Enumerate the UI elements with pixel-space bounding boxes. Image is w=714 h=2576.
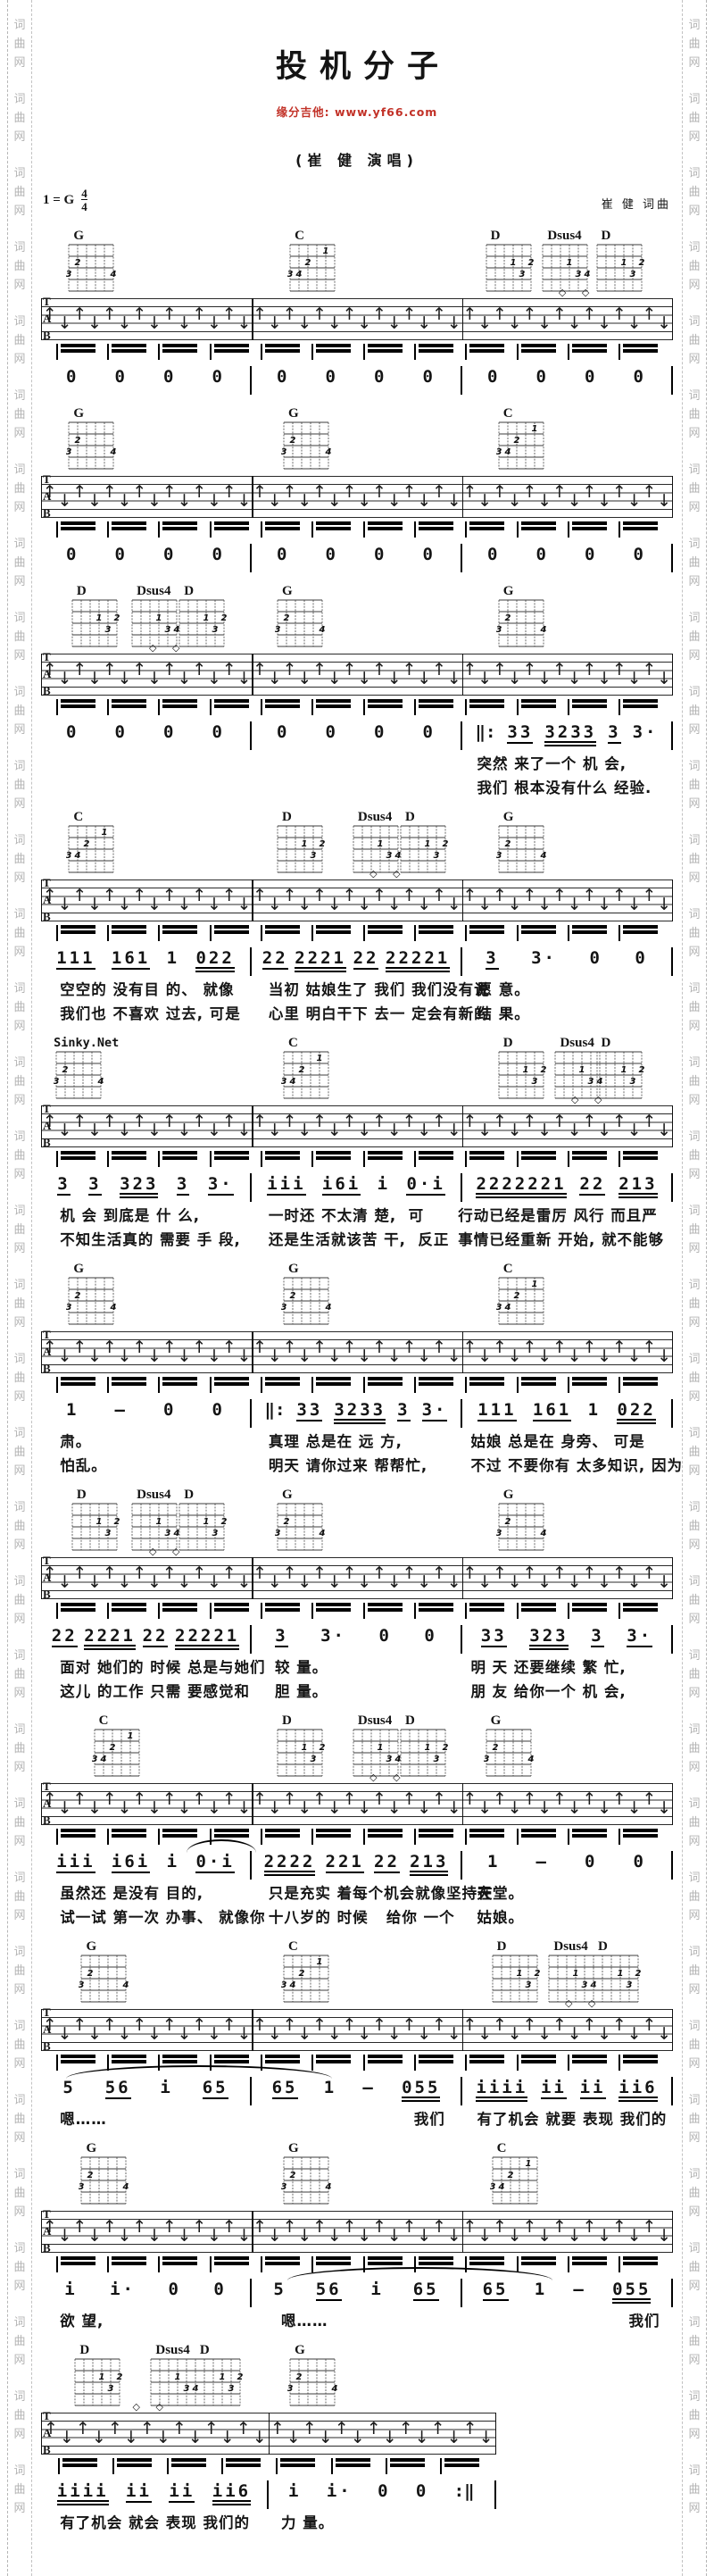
melody-note: i	[370, 2280, 383, 2298]
beam-bar	[316, 2256, 351, 2260]
beam-group	[158, 521, 197, 538]
strum-down-icon: ↓	[537, 2026, 552, 2043]
beam-bar	[162, 349, 197, 353]
chord-g: G234	[79, 2141, 132, 2210]
melody-measure: 0000	[252, 721, 462, 750]
beam-bar	[112, 1829, 146, 1832]
svg-text:3: 3	[582, 1980, 588, 1990]
beam-bar	[521, 527, 556, 530]
beam-group	[619, 699, 658, 715]
strum-up-icon: ↑	[72, 1565, 87, 1582]
melody-measure: 651–055	[252, 2077, 462, 2105]
svg-text:2: 2	[443, 1743, 448, 1753]
beam-group	[465, 1603, 504, 1619]
strum-up-icon: ↑	[432, 306, 446, 323]
strum-up-icon: ↑	[343, 1113, 357, 1130]
beam-bar	[390, 2463, 425, 2467]
beam-bar	[280, 2458, 315, 2462]
beam-group	[568, 344, 607, 360]
beam-group	[414, 699, 453, 715]
beam-group	[56, 1377, 95, 1393]
strum-down-icon: ↓	[268, 1122, 282, 1139]
melody-note: 22	[579, 1175, 605, 1196]
chord-name: D	[177, 1488, 230, 1502]
melody-measure: 0000	[41, 721, 252, 750]
melody-note: 0	[66, 368, 79, 386]
beam-bar	[316, 344, 351, 347]
strum-down-icon: ↓	[357, 493, 371, 510]
beam-bar	[419, 521, 453, 525]
beam-bar	[61, 349, 95, 353]
beam-bar	[419, 1382, 453, 1386]
beam-bar	[214, 1382, 249, 1386]
melody-note: 111	[477, 1401, 516, 1421]
strum-down-icon: ↓	[58, 315, 72, 332]
chord-diagram: 1234	[496, 1276, 550, 1330]
beam-group	[568, 925, 607, 941]
strum-up-icon: ↑	[192, 1565, 206, 1582]
chord-d: D123	[70, 584, 123, 653]
beam-bar	[265, 1608, 300, 1612]
chord-d: D123	[275, 1713, 328, 1782]
svg-text:4: 4	[97, 1077, 104, 1087]
tab-staff-wrap: TAB↑↓↑↓↑↓↑↓↑↓↑↓↑↓↑↓↑↓↑↓↑↓↑↓↑↓↑↓◇ ◇	[41, 2413, 496, 2455]
melody-note: 0	[212, 546, 225, 563]
strum-up-icon: ↑	[642, 484, 656, 501]
beam-group	[210, 699, 249, 715]
strum-down-icon: ↓	[568, 2228, 582, 2245]
beam-bar	[368, 930, 403, 934]
strum-up-icon: ↑	[462, 1113, 477, 1130]
strum-down-icon: ↓	[237, 493, 252, 510]
tab-staff: TAB↑↓↑↓↑↓↑↓↑↓↑↓↑↓↑↓↑↓↑↓↑↓↑↓↑↓↑↓↑↓↑↓↑↓↑↓↑…	[41, 1783, 673, 1825]
beam-bar	[572, 1829, 607, 1832]
beam-bar	[61, 1151, 95, 1155]
lyrics-segment: 心里 明白干下 去一 定会有新的	[269, 1002, 490, 1023]
chord-grid: 234	[496, 598, 546, 649]
lyrics-line: 试一试 第一次 办事、 就像你十八岁的 时候 给你 一个姑娘。	[41, 1904, 673, 1928]
strum-down-icon: ↓	[207, 1122, 221, 1139]
beam-bar	[112, 1382, 146, 1386]
strum-down-icon: ↓	[568, 315, 582, 332]
beam-bar	[214, 527, 249, 530]
beam-bar	[214, 521, 249, 525]
strum-up-icon: ↑	[162, 662, 177, 679]
svg-text:4: 4	[584, 270, 590, 279]
strum-up-icon: ↑	[283, 888, 297, 905]
chord-row: G234G234C1234	[41, 406, 673, 476]
strum-up-icon: ↑	[462, 484, 477, 501]
beam-bar	[171, 2463, 206, 2467]
tab-letters: TAB	[43, 473, 54, 519]
strum-up-icon: ↑	[72, 306, 87, 323]
beam-group	[440, 2458, 479, 2474]
strum-up-icon: ↑	[222, 484, 237, 501]
strum-up-icon: ↑	[72, 888, 87, 905]
melody-measure: ‖:33323333·	[462, 721, 673, 750]
lyrics-segment: 我们	[628, 2309, 660, 2330]
strum-up-icon: ↑	[403, 1565, 417, 1582]
beam-bar	[61, 2055, 95, 2058]
beam-group	[167, 2458, 206, 2474]
strum-down-icon: ↓	[268, 2026, 282, 2043]
strum-down-icon: ↓	[328, 671, 342, 688]
strum-up-icon: ↑	[582, 1565, 596, 1582]
strum-down-icon: ↓	[207, 671, 221, 688]
strum-up-icon: ↑	[283, 1565, 297, 1582]
strum-down-icon: ↓	[118, 2026, 132, 2043]
chord-name: G	[496, 584, 550, 598]
strum-up-icon: ↑	[343, 2219, 357, 2236]
beam-bar	[316, 2060, 351, 2063]
beam-bar	[368, 2060, 403, 2063]
strum-down-icon: ↓	[328, 1574, 342, 1591]
beam-group	[465, 2055, 504, 2071]
beam-bar	[444, 2458, 479, 2462]
svg-text:4: 4	[539, 851, 545, 861]
svg-text:3: 3	[496, 851, 502, 861]
beam-bar	[112, 2060, 146, 2063]
svg-text:3: 3	[212, 1529, 219, 1538]
svg-text:1: 1	[522, 1065, 528, 1075]
strum-down-icon: ↓	[357, 2026, 371, 2043]
svg-text:3: 3	[629, 270, 635, 279]
beam-bar	[112, 2262, 146, 2265]
svg-text:3: 3	[92, 1755, 98, 1764]
melody-measure: 222222122213	[462, 1173, 673, 1202]
strum-measure: ↑↓↑↓↑↓↑↓↑↓↑↓↑↓	[252, 654, 461, 696]
melody-measure: 0000	[252, 544, 462, 572]
lyrics-segment: 十八岁的 时候 给你 一个	[269, 1905, 455, 1927]
beam-bar	[521, 1156, 556, 1160]
strum-up-icon: ↑	[253, 1339, 267, 1356]
tab-letter-b: B	[43, 1363, 54, 1374]
strum-down-icon: ↓	[508, 1122, 522, 1139]
strum-up-icon: ↑	[462, 1565, 477, 1582]
tab-letters: TAB	[43, 877, 54, 922]
lyrics-segment: 试一试 第一次 办事、 就像你	[60, 1905, 265, 1927]
beam-bar	[419, 1603, 453, 1606]
melody-note: 161	[533, 1401, 571, 1421]
strum-down-icon: ↓	[297, 315, 311, 332]
melody-note: 0	[163, 368, 176, 386]
melody-note: ii	[169, 2482, 195, 2503]
melody-note: 3·	[627, 1627, 652, 1647]
chord-d: D123	[70, 1488, 123, 1556]
accent-diamonds: ◇ ◇	[565, 1997, 602, 2009]
beam-group	[465, 521, 504, 538]
strum-up-icon: ↑	[642, 888, 656, 905]
accent-diamonds: ◇ ◇	[559, 287, 595, 298]
strum-measure: ↑↓↑↓↑↓↑↓↑↓↑↓↑↓	[252, 1331, 461, 1373]
melody-note: 0	[374, 723, 386, 741]
chord-g: G234	[281, 1262, 335, 1330]
tab-system-3: D123Dsus4134D123G234G234TAB↑↓↑↓↑↓↑↓↑↓↑↓↑…	[0, 584, 714, 798]
strum-down-icon: ↓	[447, 493, 461, 510]
strum-down-icon: ↓	[508, 671, 522, 688]
chord-grid: 1234	[496, 421, 546, 471]
chord-diagram: 123	[484, 243, 537, 297]
melody-note: 22	[143, 1627, 169, 1647]
melody-note: –	[536, 1853, 549, 1871]
beam-bar	[469, 1377, 504, 1380]
strum-down-icon: ↓	[447, 1348, 461, 1365]
beam-bar	[368, 344, 403, 347]
strum-down-icon: ↓	[207, 1574, 221, 1591]
strum-up-icon: ↑	[283, 306, 297, 323]
strum-arrows: ↑↓↑↓↑↓↑↓↑↓↑↓↑↓↑↓↑↓↑↓↑↓↑↓↑↓↑↓↑↓↑↓↑↓↑↓↑↓↑↓…	[42, 1557, 672, 1599]
strum-up-icon: ↑	[253, 2219, 267, 2236]
lyrics-segment: 天堂。	[477, 1881, 525, 1903]
melody-note: 0	[416, 2482, 428, 2500]
beam-bar	[368, 349, 403, 353]
strum-up-icon: ↑	[253, 1565, 267, 1582]
repeat-start-sign: ‖:	[265, 1401, 286, 1419]
melody-note: 0	[326, 368, 338, 386]
chord-name: C	[92, 1713, 145, 1728]
beam-group	[619, 2055, 658, 2071]
strum-down-icon: ↓	[87, 493, 102, 510]
strum-up-icon: ↑	[612, 888, 627, 905]
melody-measure: iiii6ii0·i	[252, 1173, 462, 1202]
strum-up-icon: ↑	[522, 1791, 536, 1808]
strum-up-icon: ↑	[642, 306, 656, 323]
chord-name: D	[484, 229, 537, 243]
strum-down-icon: ↓	[627, 315, 642, 332]
tab-staff: TAB↑↓↑↓↑↓↑↓↑↓↑↓↑↓↑↓↑↓↑↓↑↓↑↓↑↓↑↓↑↓↑↓↑↓↑↓↑…	[41, 1557, 673, 1599]
strum-down-icon: ↓	[268, 2228, 282, 2245]
beam-bar	[419, 2055, 453, 2058]
chord-diagram: 1234	[490, 2155, 544, 2210]
melody-note: i	[167, 1853, 179, 1871]
beam-bar	[368, 2262, 403, 2265]
beam-group	[414, 1151, 453, 1167]
svg-text:3: 3	[519, 270, 525, 279]
beam-bar	[572, 1156, 607, 1160]
strum-up-icon: ↑	[162, 1565, 177, 1582]
beam-bar	[214, 349, 249, 353]
chord-diagram: 234	[66, 421, 120, 475]
strum-down-icon: ↓	[147, 2228, 162, 2245]
beam-bar	[61, 1382, 95, 1386]
strum-up-icon: ↑	[222, 306, 237, 323]
strum-up-icon: ↑	[582, 2017, 596, 2034]
melody-note: 111	[56, 949, 95, 970]
strum-down-icon: ↓	[207, 315, 221, 332]
beam-bar	[419, 925, 453, 929]
melody-note: i	[288, 2482, 301, 2500]
strum-down-icon: ↓	[537, 2228, 552, 2245]
chord-grid: 123	[70, 598, 120, 649]
beam-bar	[368, 925, 403, 929]
strum-measure: ↑↓↑↓↑↓↑↓↑↓↑↓↑↓	[252, 2211, 461, 2253]
beam-bar	[469, 2256, 504, 2260]
beam-group	[517, 1151, 556, 1167]
chord-name: G	[66, 406, 120, 421]
svg-text:4: 4	[289, 1980, 296, 1990]
beam-bar	[521, 2055, 556, 2058]
melody-note: 0	[277, 368, 289, 386]
strum-up-icon: ↑	[312, 1339, 327, 1356]
strum-up-icon: ↑	[552, 1339, 567, 1356]
strum-down-icon: ↓	[297, 1574, 311, 1591]
strum-down-icon: ↓	[237, 671, 252, 688]
beam-bar	[162, 699, 197, 703]
strum-up-icon: ↑	[462, 2219, 477, 2236]
strum-down-icon: ↓	[657, 1348, 671, 1365]
strum-down-icon: ↓	[477, 896, 492, 913]
beam-bar	[368, 527, 403, 530]
strum-down-icon: ↓	[479, 2430, 494, 2447]
beam-group	[568, 699, 607, 715]
melody-measure: iiiiiiiiii6	[41, 2480, 269, 2509]
strum-measure: ↑↓↑↓↑↓↑↓↑↓↑↓↑↓	[252, 880, 461, 921]
beam-bar	[368, 2055, 403, 2058]
strum-up-icon: ↑	[372, 1339, 386, 1356]
tab-system-10: G234G234C1234TAB↑↓↑↓↑↓↑↓↑↓↑↓↑↓↑↓↑↓↑↓↑↓↑↓…	[0, 2141, 714, 2331]
beam-bar	[419, 704, 453, 708]
melody-measure: 33·00	[252, 1625, 462, 1654]
strum-down-icon: ↓	[118, 1574, 132, 1591]
strum-up-icon: ↑	[72, 1791, 87, 1808]
beam-bar	[214, 1834, 249, 1838]
svg-text:3: 3	[287, 270, 294, 279]
beam-bar	[469, 699, 504, 703]
svg-text:3: 3	[79, 2182, 85, 2192]
chord-d: D123	[275, 810, 328, 879]
key-signature: 1 = G 4 4	[43, 188, 87, 213]
beam-group	[261, 1603, 300, 1619]
lyrics-segment: 较 量。	[275, 1655, 328, 1677]
strum-down-icon: ↓	[297, 1122, 311, 1139]
melody-note: ii	[580, 2079, 606, 2099]
beam-bar	[162, 1156, 197, 1160]
strum-up-icon: ↑	[283, 484, 297, 501]
beam-bar	[265, 1603, 300, 1606]
strum-down-icon: ↓	[297, 671, 311, 688]
tab-letter-t: T	[43, 651, 54, 663]
svg-text:4: 4	[110, 270, 116, 279]
beam-group	[619, 344, 658, 360]
beam-group	[331, 2458, 370, 2474]
melody-measure: 0000	[41, 544, 252, 572]
accent-diamonds: ◇ ◇	[369, 868, 406, 880]
beam-group	[363, 699, 403, 715]
chord-name: G	[496, 810, 550, 824]
svg-text:1: 1	[219, 2372, 225, 2382]
beam-bar	[469, 1151, 504, 1155]
strum-down-icon: ↓	[328, 315, 342, 332]
melody-note: 0	[212, 723, 225, 741]
beam-bar	[112, 699, 146, 703]
svg-text:2: 2	[513, 1291, 519, 1301]
strum-up-icon: ↑	[552, 306, 567, 323]
strum-down-icon: ↓	[328, 1800, 342, 1817]
strum-up-icon: ↑	[222, 888, 237, 905]
strum-down-icon: ↓	[147, 1348, 162, 1365]
tab-letter-b: B	[43, 911, 54, 922]
strum-down-icon: ↓	[417, 315, 431, 332]
strum-down-icon: ↓	[156, 2430, 170, 2447]
beam-bar	[316, 349, 351, 353]
svg-text:3: 3	[108, 2384, 114, 2394]
strum-arrows: ↑↓↑↓↑↓↑↓↑↓↑↓↑↓↑↓↑↓↑↓↑↓↑↓↑↓↑↓↑↓↑↓↑↓↑↓↑↓↑↓…	[42, 1331, 672, 1373]
lyrics-line: 我们 根本没有什么 经验.	[41, 774, 673, 798]
strum-arrows: ↑↓↑↓↑↓↑↓↑↓↑↓↑↓↑↓↑↓↑↓↑↓↑↓↑↓↑↓↑↓↑↓↑↓↑↓↑↓↑↓…	[42, 2009, 672, 2051]
chord-name: D	[398, 810, 452, 824]
beam-group	[414, 1829, 453, 1845]
tab-staff-wrap: TAB↑↓↑↓↑↓↑↓↑↓↑↓↑↓↑↓↑↓↑↓↑↓↑↓↑↓↑↓↑↓↑↓↑↓↑↓↑…	[41, 476, 673, 518]
strum-down-icon: ↓	[297, 1800, 311, 1817]
strum-up-icon: ↑	[612, 1791, 627, 1808]
beam-bar	[336, 2458, 370, 2462]
chord-d: D123	[72, 2343, 126, 2412]
beam-bar	[214, 704, 249, 708]
beam-bar	[112, 2256, 146, 2260]
lyrics-line: 突然 来了一个 机 会,	[41, 750, 673, 774]
beam-bar	[368, 1382, 403, 1386]
melody-note: 0	[423, 723, 436, 741]
beam-bar	[623, 2262, 658, 2265]
strum-down-icon: ↓	[657, 2026, 671, 2043]
svg-text:2: 2	[635, 1969, 640, 1979]
strum-down-icon: ↓	[477, 493, 492, 510]
strum-down-icon: ↓	[477, 2228, 492, 2245]
melody-note: 0	[424, 1627, 436, 1645]
beam-bar	[61, 521, 95, 525]
strum-down-icon: ↓	[597, 1348, 611, 1365]
strum-up-icon: ↑	[432, 1339, 446, 1356]
melody-note: 3·	[531, 949, 557, 967]
beam-bar	[419, 1829, 453, 1832]
strum-up-icon: ↑	[312, 1565, 327, 1582]
beam-bar	[61, 1603, 95, 1606]
melody-measure: 3332333·	[462, 1625, 673, 1654]
tab-staff: TAB↑↓↑↓↑↓↑↓↑↓↑↓↑↓↑↓↑↓↑↓↑↓↑↓↑↓↑↓↑↓↑↓↑↓↑↓↑…	[41, 1331, 673, 1373]
melody-measure: iiii6ii0·i	[41, 1851, 252, 1880]
tab-staff-wrap: TAB↑↓↑↓↑↓↑↓↑↓↑↓↑↓↑↓↑↓↑↓↑↓↑↓↑↓↑↓↑↓↑↓↑↓↑↓↑…	[41, 1105, 673, 1147]
strum-measure: ↑↓↑↓↑↓↑↓↑↓↑↓↑↓	[42, 880, 252, 921]
melody-note: 33	[481, 1627, 507, 1647]
beam-bar	[572, 1834, 607, 1838]
strum-down-icon: ↓	[537, 315, 552, 332]
lyrics-line: 嗯……我们有了机会 就要 表现 我们的	[41, 2105, 673, 2130]
beam-bar	[265, 704, 300, 708]
strum-up-icon: ↑	[343, 2017, 357, 2034]
melody-note: 33	[507, 723, 533, 744]
beam-bar	[521, 1829, 556, 1832]
svg-text:4: 4	[331, 2384, 337, 2394]
chord-grid: 123	[193, 2357, 243, 2408]
tab-staff-wrap: TAB↑↓↑↓↑↓↑↓↑↓↑↓↑↓↑↓↑↓↑↓↑↓↑↓↑↓↑↓↑↓↑↓↑↓↑↓↑…	[41, 654, 673, 696]
tab-letter-t: T	[43, 2410, 54, 2422]
svg-text:3: 3	[310, 851, 316, 861]
beam-bar	[112, 349, 146, 353]
strum-up-icon: ↑	[335, 2421, 349, 2438]
beam-bar	[265, 930, 300, 934]
strum-up-icon: ↑	[403, 2219, 417, 2236]
strum-down-icon: ↓	[537, 1574, 552, 1591]
beam-bar	[521, 699, 556, 703]
strum-up-icon: ↑	[403, 484, 417, 501]
melody-note: 3·	[208, 1175, 234, 1196]
beam-bar	[521, 349, 556, 353]
chord-grid: 234	[54, 1050, 104, 1101]
beam-group	[158, 2256, 197, 2272]
strum-up-icon: ↑	[582, 662, 596, 679]
beam-group	[158, 1829, 197, 1845]
tab-staff: TAB↑↓↑↓↑↓↑↓↑↓↑↓↑↓↑↓↑↓↑↓↑↓↑↓↑↓↑↓↑↓↑↓↑↓↑↓↑…	[41, 476, 673, 518]
